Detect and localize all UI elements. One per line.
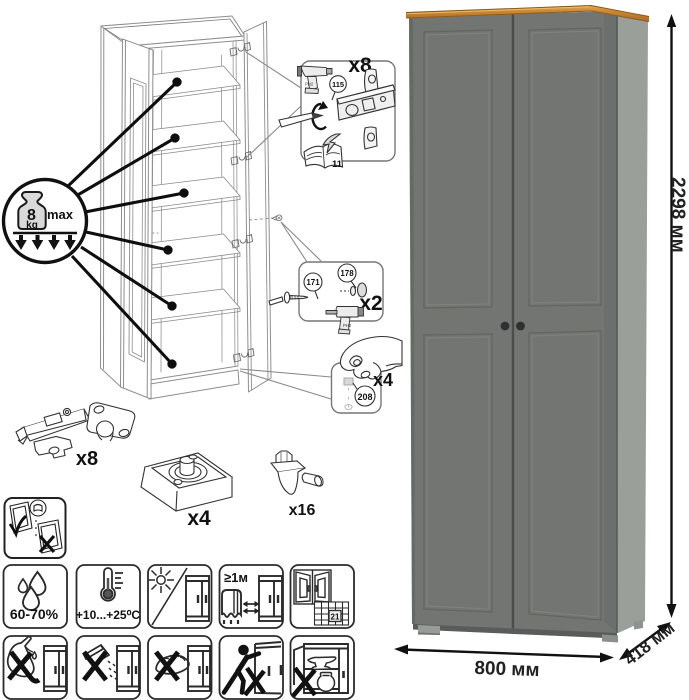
svg-text:x8: x8 (76, 448, 98, 470)
svg-text:+10...+25⁰C: +10...+25⁰C (76, 608, 141, 622)
svg-text:x4: x4 (373, 370, 393, 390)
svg-text:PH2: PH2 (343, 323, 352, 328)
svg-text:171: 171 (306, 278, 320, 287)
svg-text:11: 11 (332, 159, 343, 170)
svg-text:kg: kg (26, 220, 38, 231)
svg-text:x4: x4 (187, 507, 211, 530)
svg-text:2298 мм: 2298 мм (667, 177, 688, 253)
svg-text:≥1м: ≥1м (224, 570, 248, 585)
svg-text:178: 178 (340, 269, 354, 278)
svg-text:21: 21 (331, 613, 340, 622)
svg-text:800 мм: 800 мм (474, 658, 540, 681)
svg-text:60-70%: 60-70% (10, 606, 59, 622)
svg-text:max: max (47, 207, 74, 222)
svg-text:x16: x16 (289, 502, 316, 519)
svg-text:208: 208 (357, 392, 372, 402)
svg-text:115: 115 (332, 80, 344, 89)
svg-text:PH2: PH2 (305, 82, 314, 87)
